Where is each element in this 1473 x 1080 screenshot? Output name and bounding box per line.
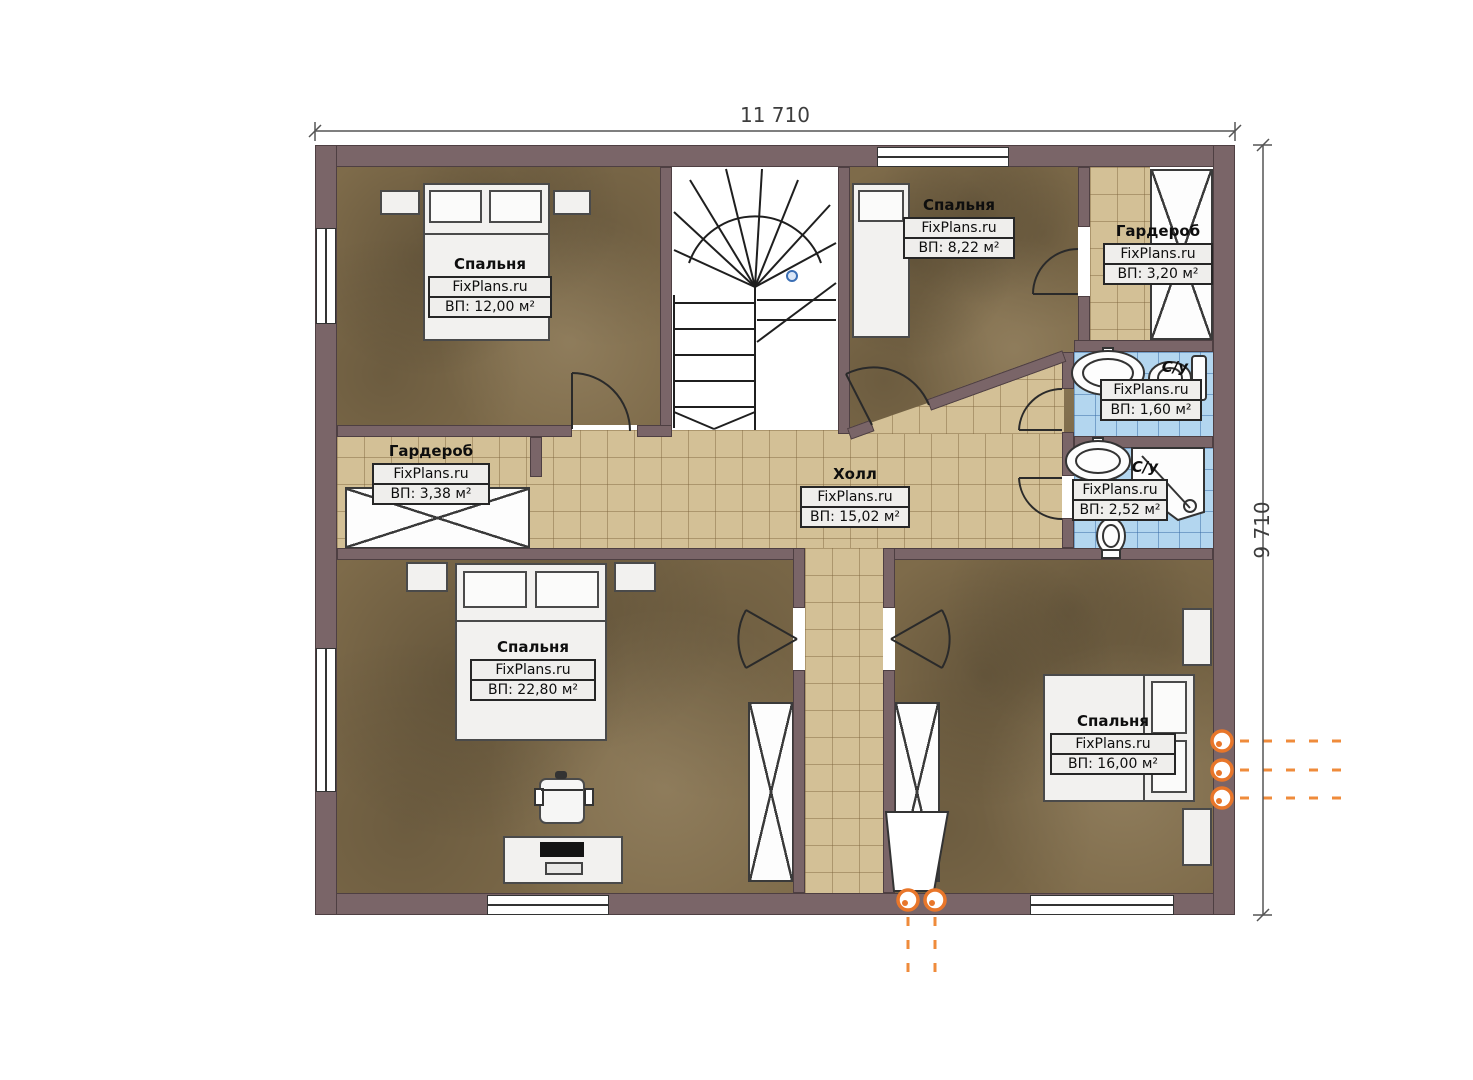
pot-rim [541, 789, 583, 791]
room-name: Спальня [923, 196, 995, 214]
room-name: Гардероб [389, 442, 473, 460]
brand-text: FixPlans.ru [430, 278, 550, 296]
window [316, 648, 336, 792]
room-area: ВП: 8,22 м² [905, 237, 1013, 257]
brand-text: FixPlans.ru [1105, 245, 1211, 263]
wall-segment [660, 167, 672, 437]
room-name: Спальня [1077, 712, 1149, 730]
nightstand [1182, 808, 1212, 866]
window [1030, 895, 1174, 915]
wall-segment [637, 425, 672, 437]
floor-corridor [805, 548, 883, 893]
wall-segment [337, 425, 572, 437]
wall-segment [793, 670, 805, 893]
wall-segment [1213, 145, 1235, 915]
room-label-wardrobe-left: Гардероб FixPlans.ru ВП: 3,38 м² [372, 442, 490, 505]
room-label-bathroom-2: С/у FixPlans.ru ВП: 2,52 м² [1072, 458, 1168, 521]
pot-icon [539, 778, 585, 824]
room-area: ВП: 22,80 м² [472, 679, 594, 699]
wardrobe-unit [894, 702, 940, 882]
floor-plan: Спальня FixPlans.ru ВП: 12,00 м² Спальня… [0, 0, 1473, 1080]
room-area: ВП: 16,00 м² [1052, 753, 1174, 773]
room-area: ВП: 3,20 м² [1105, 263, 1211, 283]
wall-segment [1062, 518, 1074, 548]
pillow [489, 190, 542, 223]
room-label-bathroom-1: С/у FixPlans.ru ВП: 1,60 м² [1100, 358, 1202, 421]
room-label-bedroom-bottom-right: Спальня FixPlans.ru ВП: 16,00 м² [1050, 712, 1176, 775]
room-name: Спальня [454, 255, 526, 273]
stair-marker-icon [787, 271, 797, 281]
blanket-line [425, 233, 548, 235]
dresser [503, 836, 623, 884]
window [487, 895, 609, 915]
nightstand [553, 190, 591, 215]
blanket-line [457, 620, 605, 622]
pillow [858, 190, 904, 222]
wall-segment [793, 548, 805, 608]
tv-icon [540, 842, 584, 857]
room-area: ВП: 2,52 м² [1074, 499, 1166, 519]
room-area: ВП: 12,00 м² [430, 296, 550, 316]
brand-text: FixPlans.ru [472, 661, 594, 679]
pillow [535, 571, 599, 608]
bed [852, 183, 910, 338]
brand-text: FixPlans.ru [374, 465, 488, 483]
room-label-hall: Холл FixPlans.ru ВП: 15,02 м² [800, 465, 910, 528]
staircase-icon [674, 169, 836, 430]
room-area: ВП: 15,02 м² [802, 506, 908, 526]
room-name: С/у [1162, 358, 1188, 376]
room-area: ВП: 3,38 м² [374, 483, 488, 503]
wall-segment [530, 437, 542, 477]
room-name: Гардероб [1116, 222, 1200, 240]
nightstand [614, 562, 656, 592]
room-label-bedroom-bottom-left: Спальня FixPlans.ru ВП: 22,80 м² [470, 638, 596, 701]
wardrobe-unit [748, 702, 794, 882]
pillow [429, 190, 482, 223]
room-label-bedroom-top-left: Спальня FixPlans.ru ВП: 12,00 м² [428, 255, 552, 318]
dimension-width: 11 710 [715, 103, 835, 127]
wall-segment [1074, 436, 1213, 448]
pot-handle [584, 788, 594, 806]
window [877, 147, 1009, 167]
wall-segment [315, 145, 1235, 167]
room-name: С/у [1132, 458, 1158, 476]
room-label-wardrobe-top-right: Гардероб FixPlans.ru ВП: 3,20 м² [1103, 222, 1213, 285]
pot-knob [555, 771, 567, 779]
brand-text: FixPlans.ru [905, 219, 1013, 237]
brand-text: FixPlans.ru [1052, 735, 1174, 753]
nightstand [406, 562, 448, 592]
nightstand [380, 190, 420, 215]
wall-segment [337, 548, 805, 560]
wall-segment [838, 167, 850, 434]
pillow [463, 571, 527, 608]
room-name: Холл [833, 465, 877, 483]
brand-text: FixPlans.ru [802, 488, 908, 506]
room-area: ВП: 1,60 м² [1102, 399, 1200, 419]
room-name: Спальня [497, 638, 569, 656]
room-label-bedroom-top-middle: Спальня FixPlans.ru ВП: 8,22 м² [903, 196, 1015, 259]
brand-text: FixPlans.ru [1102, 381, 1200, 399]
wall-segment [1074, 340, 1213, 352]
drawer-handle [545, 862, 583, 875]
dimension-height: 9 710 [1250, 480, 1274, 580]
wall-segment [1078, 167, 1090, 227]
wall-segment [883, 548, 895, 608]
wall-segment [883, 670, 895, 893]
brand-text: FixPlans.ru [1074, 481, 1166, 499]
wall-segment [883, 548, 1213, 560]
nightstand [1182, 608, 1212, 666]
window [316, 228, 336, 324]
